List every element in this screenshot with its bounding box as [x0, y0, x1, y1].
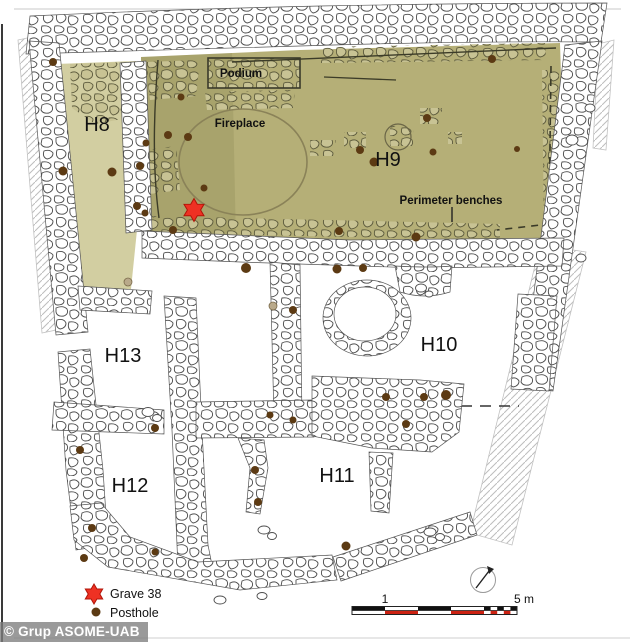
wall-h13-h12-divider [52, 402, 164, 434]
scale-end-label: 5 m [514, 592, 534, 606]
north-arrow [471, 566, 496, 593]
plan-svg: H8 H9 H10 H11 H12 H13 Podium Fireplace P… [0, 0, 634, 642]
legend-grave-symbol [85, 584, 102, 604]
legend-posthole-label: Posthole [110, 606, 159, 620]
room-label-h9: H9 [375, 149, 401, 171]
scale-tick-1: 1 [382, 592, 389, 606]
horseshoe-structure [323, 280, 411, 356]
wall-stub-south [369, 452, 393, 513]
room-label-h12: H12 [112, 475, 149, 497]
room-label-h11: H11 [319, 465, 354, 487]
site-plan: H8 H9 H10 H11 H12 H13 Podium Fireplace P… [0, 0, 634, 642]
feature-label-benches: Perimeter benches [400, 195, 503, 207]
wall-hook-stub [238, 438, 268, 514]
wall-h10-h11-divider [312, 376, 464, 452]
room-label-h10: H10 [421, 334, 458, 356]
wall-h8-south [78, 286, 152, 314]
watermark: © Grup ASOME-UAB [0, 622, 148, 642]
legend-grave-label: Grave 38 [110, 587, 161, 601]
feature-label-podium: Podium [220, 68, 262, 80]
wall-central-upper [270, 262, 302, 420]
feature-label-fireplace: Fireplace [215, 118, 266, 130]
room-label-h8: H8 [84, 114, 110, 136]
legend-posthole-symbol [92, 608, 101, 617]
room-label-h13: H13 [105, 345, 142, 367]
legend: Grave 38 Posthole [85, 584, 161, 620]
wall-east-mid [511, 294, 557, 391]
scale-bar: 1 5 m [352, 592, 534, 615]
wall-southeast [333, 512, 477, 581]
